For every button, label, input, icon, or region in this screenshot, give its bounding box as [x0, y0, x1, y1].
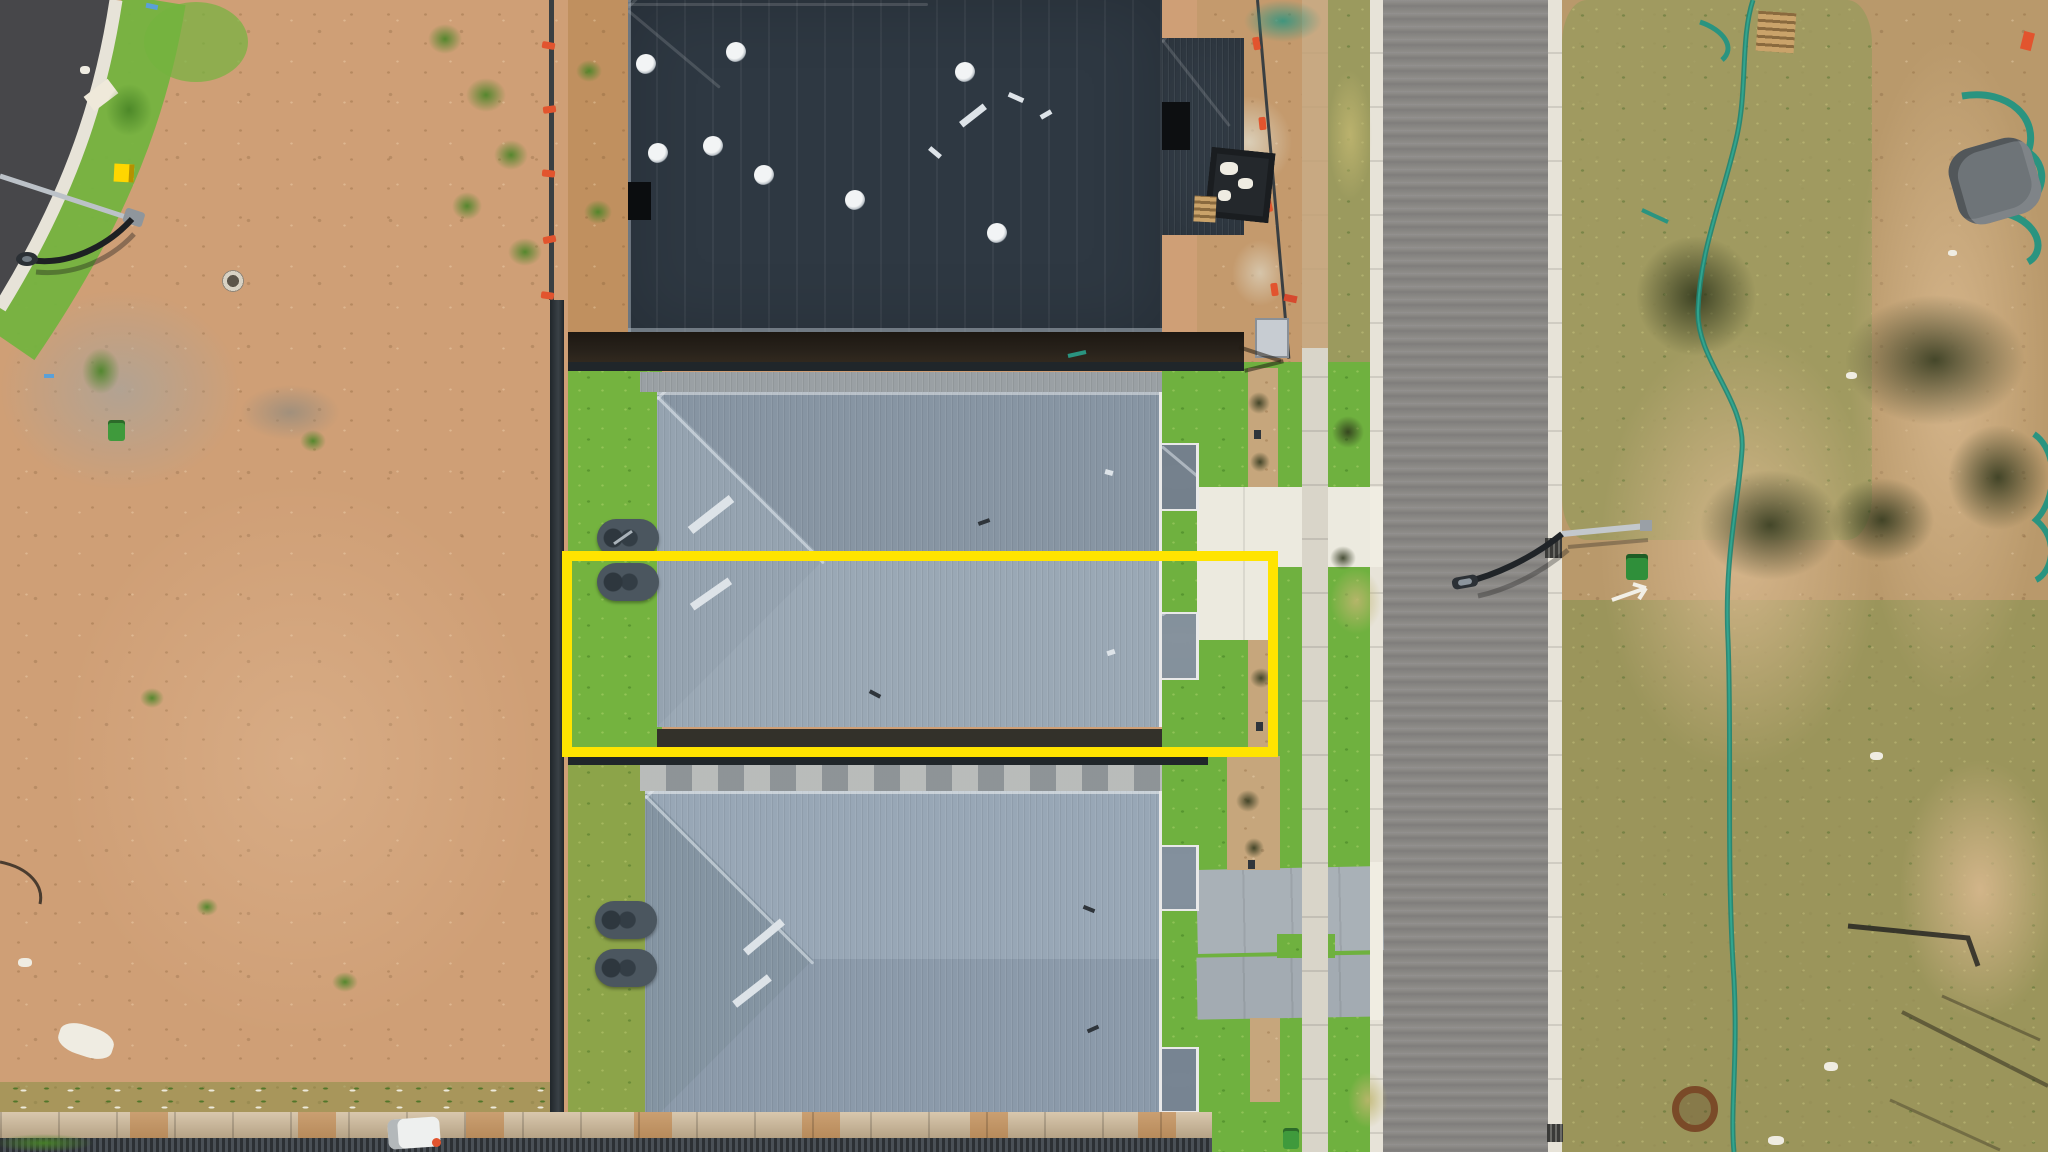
corner-tree-2: [82, 348, 120, 394]
wire-arc: [0, 862, 41, 904]
pipe-scrap-teal: [1068, 352, 1086, 356]
roof-ridge-spine: [628, 3, 928, 6]
litter-4: [1824, 1062, 1838, 1071]
green-bin-left: [108, 420, 125, 441]
streetlight-right-pole: [1562, 526, 1646, 534]
mesh-tangle-right: [2034, 434, 2048, 580]
water-tank-bot-2: [595, 949, 657, 987]
corrugated-fence-bottom: [0, 1138, 1212, 1152]
litter-2: [1870, 752, 1883, 760]
dirt-tuft-7: [140, 688, 164, 708]
roof-debris-4: [959, 104, 987, 128]
dirt-tuft-1: [428, 24, 462, 54]
house-bottom-roof: [645, 791, 1162, 1128]
traffic-cone-dot: [432, 1138, 441, 1147]
dirt-tuft-9: [196, 898, 218, 916]
silt-fence-line: [1698, 0, 1753, 1152]
manhole-cover: [222, 270, 244, 292]
lot-boundary-highlight: [562, 551, 1278, 757]
litter-5: [1768, 1136, 1784, 1145]
skip-bag-3: [1218, 190, 1231, 201]
roof-vent-4: [703, 136, 723, 156]
roof-debris-2: [1040, 109, 1053, 119]
dirt-tuft-3: [494, 140, 528, 170]
garage-ridge-b: [1162, 38, 1231, 43]
streetlight-right-pole-shadow: [1568, 540, 1648, 547]
stick-shadow-3: [1890, 1100, 2000, 1150]
dirt-tuft-2: [466, 78, 506, 112]
white-arrow-mark: [1612, 584, 1646, 600]
eave-gutter-left: [628, 0, 631, 332]
house-middle-garage-north: [1162, 443, 1199, 511]
house-bottom-garage-south: [1162, 1047, 1199, 1113]
rusty-ring: [1672, 1086, 1718, 1132]
temp-fence-foot-3: [542, 169, 556, 177]
roof-debris-1: [1008, 92, 1025, 103]
green-bin-scrub: [1626, 554, 1648, 580]
sideyard-tuft-2: [584, 200, 612, 224]
corner-tree-1: [106, 84, 152, 136]
roof-vent-8: [987, 223, 1007, 243]
pallet-small: [1193, 195, 1216, 222]
mesh-scrap: [1642, 210, 1668, 222]
blue-paint-dash-left: [44, 374, 54, 378]
skip-bag-1: [1220, 162, 1238, 175]
courtyard-opening: [1162, 102, 1190, 150]
skip-bag-2: [1238, 178, 1253, 189]
roof-debris-3: [928, 146, 942, 159]
roof-vent-7: [845, 190, 865, 210]
dirt-tuft-6: [300, 430, 326, 452]
green-bin-footpath: [1283, 1128, 1299, 1149]
sideyard-tuft-1: [576, 60, 602, 82]
metal-frame-scrap: [1848, 926, 1978, 966]
pallet-scrub: [1756, 11, 1797, 54]
white-paper-2: [18, 958, 32, 967]
front-fence-foot-2: [1258, 117, 1266, 131]
roof-ridge-hip-3: [628, 9, 721, 88]
dirt-tuft-8: [332, 972, 358, 992]
dirt-tuft-4: [452, 192, 482, 220]
eave-gutter-bottom: [628, 328, 1162, 332]
hydrant-marker: [114, 163, 135, 182]
mesh-curl-top: [1700, 22, 1728, 60]
white-speck-top: [80, 66, 90, 74]
bot-eave-gutter-top: [645, 791, 1162, 794]
roof-corrugation-b: [645, 791, 1162, 1128]
roof-vent-2: [726, 42, 746, 62]
streetlight-right-arm: [1466, 534, 1562, 582]
litter-3: [1948, 250, 1957, 256]
bot-east-gutter: [1159, 791, 1162, 1128]
house-top-roof: [628, 0, 1162, 332]
streetlight-right-cap: [1640, 520, 1652, 531]
aerial-photo: [0, 0, 2048, 1152]
mesh-pile-top: [1244, 0, 1322, 42]
roof-vent-6: [955, 62, 975, 82]
stick-shadow-1: [1902, 1012, 2048, 1086]
mid-eave-gutter-top: [657, 392, 1162, 395]
roof-vent-3: [648, 143, 668, 163]
water-tank-bot-1: [595, 901, 657, 939]
roof-vent-5: [754, 165, 774, 185]
litter-1: [1846, 372, 1857, 379]
streetlight-left-lens: [22, 256, 32, 262]
dirt-tuft-5: [508, 238, 542, 266]
corner-grass-blob: [144, 2, 248, 82]
garage-n-ridge: [1162, 445, 1199, 478]
house-bottom-garage-north: [1162, 845, 1199, 911]
stick-shadow-2: [1942, 996, 2040, 1040]
wall-opening-shadow: [628, 182, 651, 220]
roof-vent-1: [636, 54, 656, 74]
